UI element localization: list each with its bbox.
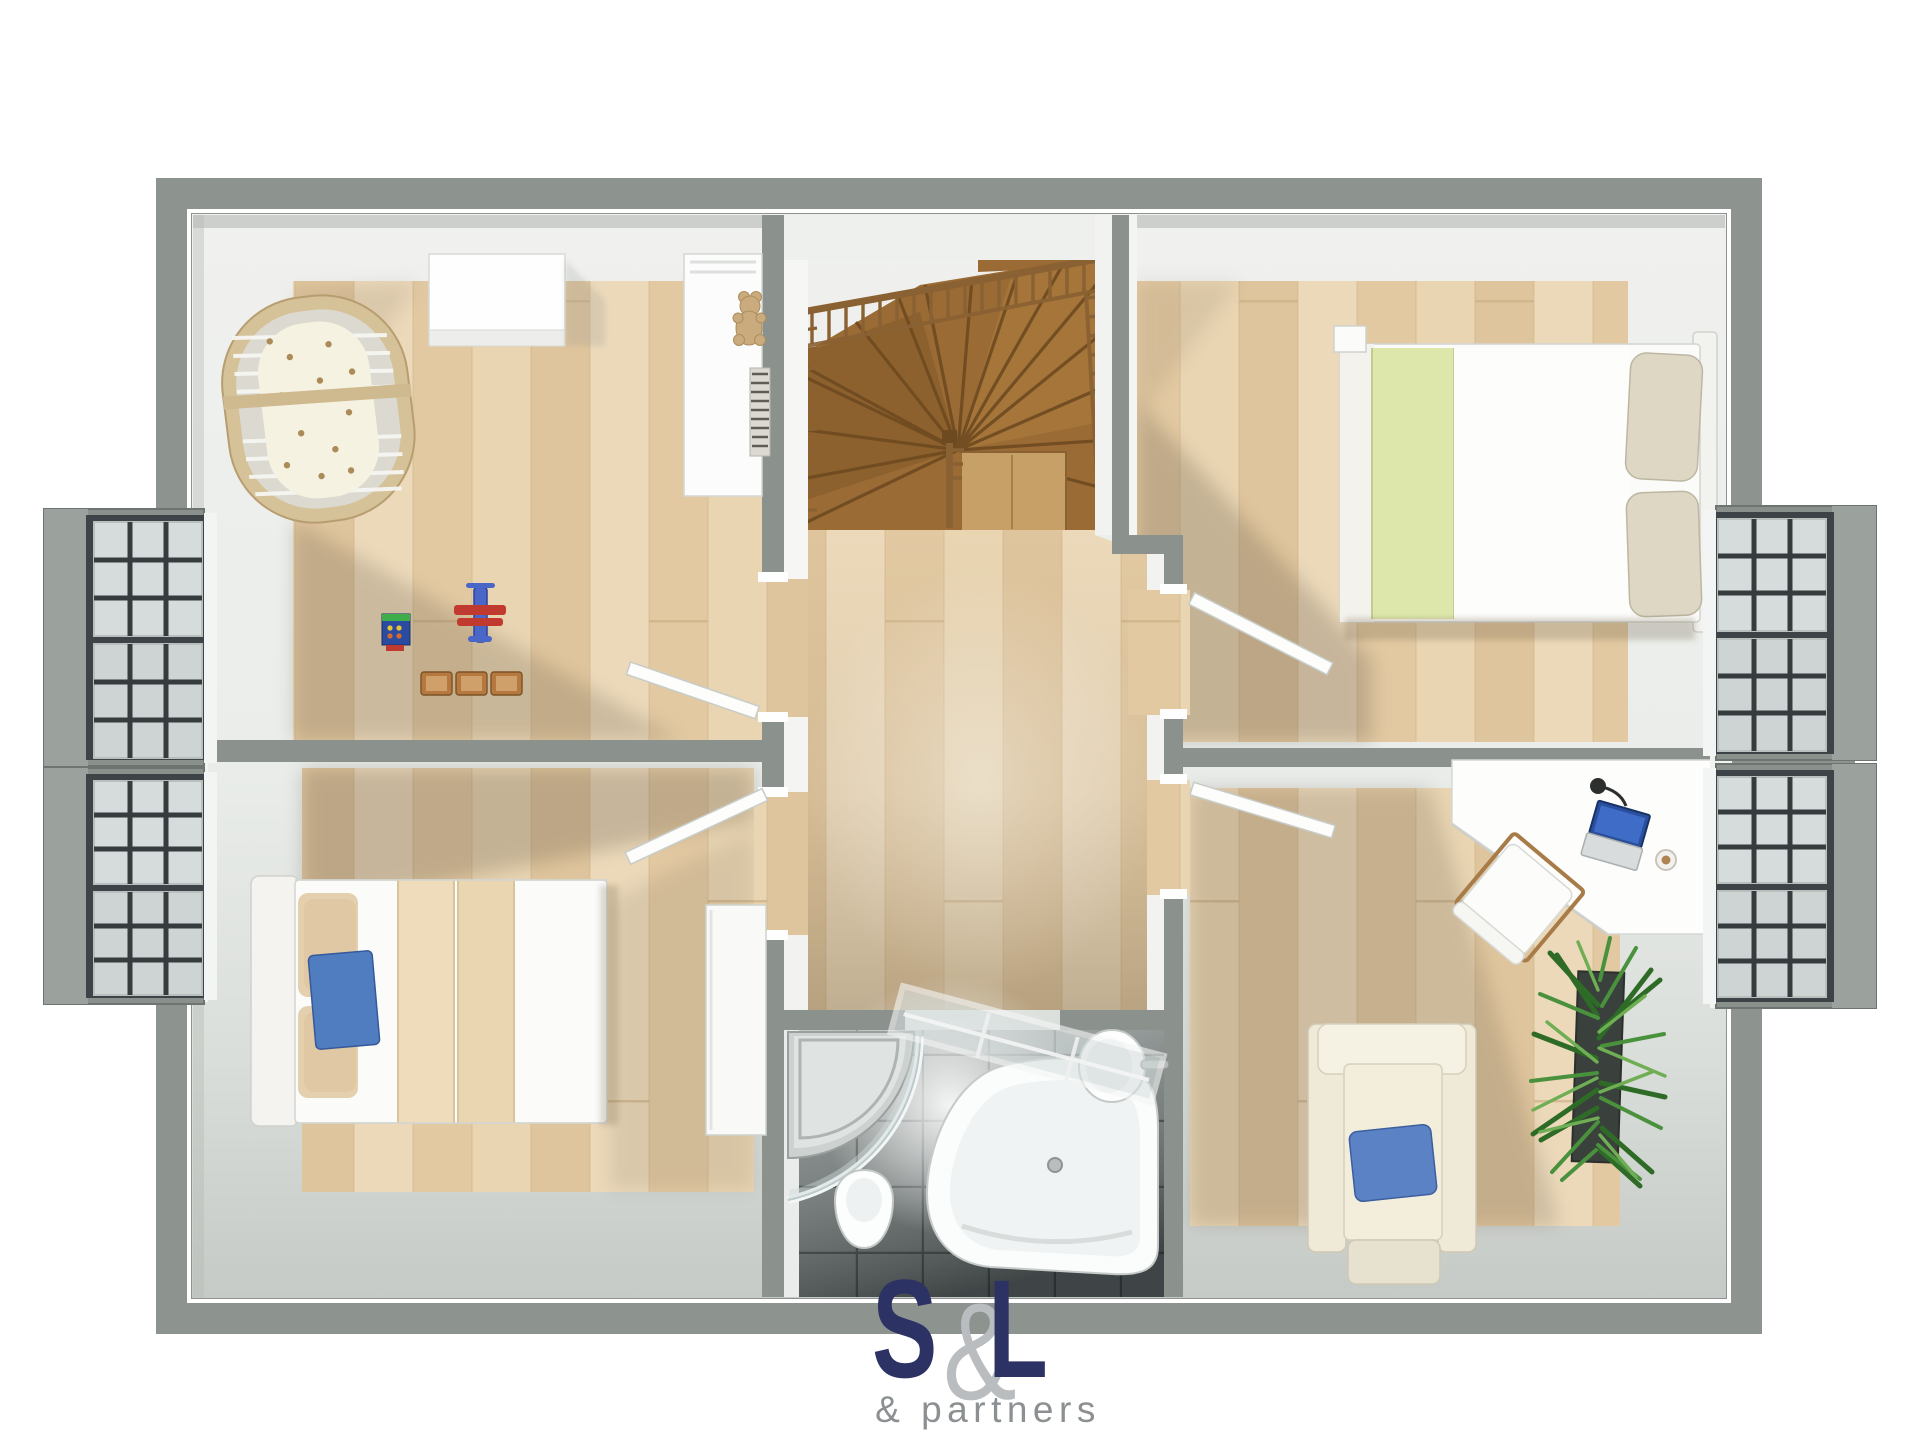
svg-text:S: S bbox=[872, 1251, 937, 1407]
svg-text:L: L bbox=[988, 1251, 1048, 1407]
svg-text:& partners: & partners bbox=[875, 1389, 1101, 1430]
